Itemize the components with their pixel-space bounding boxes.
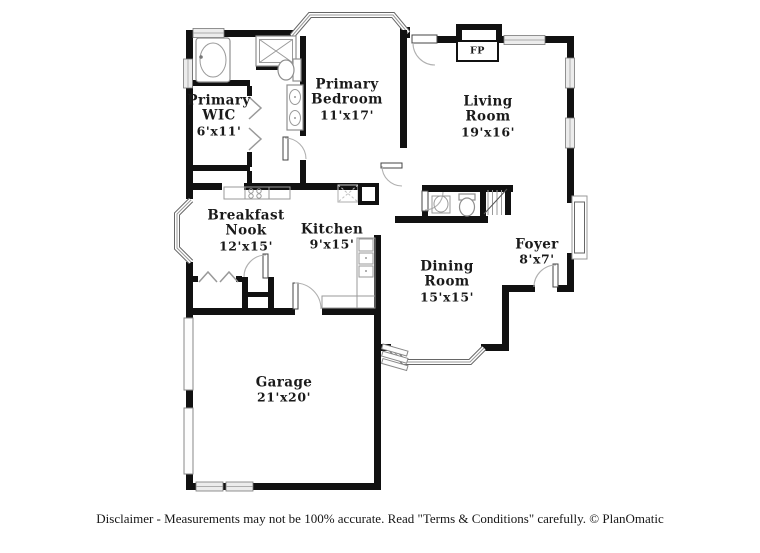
- nook-bay-window: [177, 200, 191, 262]
- bedroom-entry-door: [381, 163, 402, 168]
- front-door: [572, 196, 587, 259]
- toilet-primary: [278, 59, 301, 81]
- kitchen-closet: [360, 185, 377, 203]
- double-vanity: [287, 85, 303, 130]
- garage-entry-door: [293, 283, 298, 309]
- bedroom-bay-window: [292, 15, 408, 36]
- disclaimer-text: Disclaimer - Measurements may not be 100…: [0, 511, 760, 527]
- half-bath-door: [422, 191, 428, 211]
- stairs: [484, 189, 507, 215]
- bathtub: [196, 38, 230, 82]
- pedestal-sink: [432, 196, 450, 213]
- label-primary-bedroom: Primary Bedroom 11'x17': [311, 78, 383, 123]
- label-primary-wic: Primary WIC 6'x11': [187, 94, 250, 139]
- wic-bifold-1: [249, 97, 261, 119]
- laundry-bifold-2: [220, 272, 238, 282]
- foyer-door: [553, 264, 558, 287]
- label-kitchen: Kitchen 9'x15': [301, 222, 363, 251]
- laundry-bifold-1: [199, 272, 217, 282]
- bathroom-door: [283, 137, 288, 160]
- label-living-room: Living Room 19'x16': [461, 95, 515, 140]
- wic-bifold-2: [249, 128, 261, 150]
- label-breakfast-nook: Breakfast Nook 12'x15': [207, 209, 284, 254]
- label-foyer: Foyer 8'x7': [515, 237, 558, 266]
- hall-closet-door: [263, 254, 268, 278]
- side-entry-steps: [378, 344, 412, 371]
- living-room-door: [412, 35, 437, 43]
- label-dining-room: Dining Room 15'x15': [420, 260, 474, 305]
- fireplace-label: FP: [470, 46, 485, 57]
- label-garage: Garage 21'x20': [256, 375, 313, 404]
- half-bath-fixtures: [432, 194, 475, 216]
- floor-plan: Primary WIC 6'x11' Primary Bedroom 11'x1…: [0, 0, 760, 553]
